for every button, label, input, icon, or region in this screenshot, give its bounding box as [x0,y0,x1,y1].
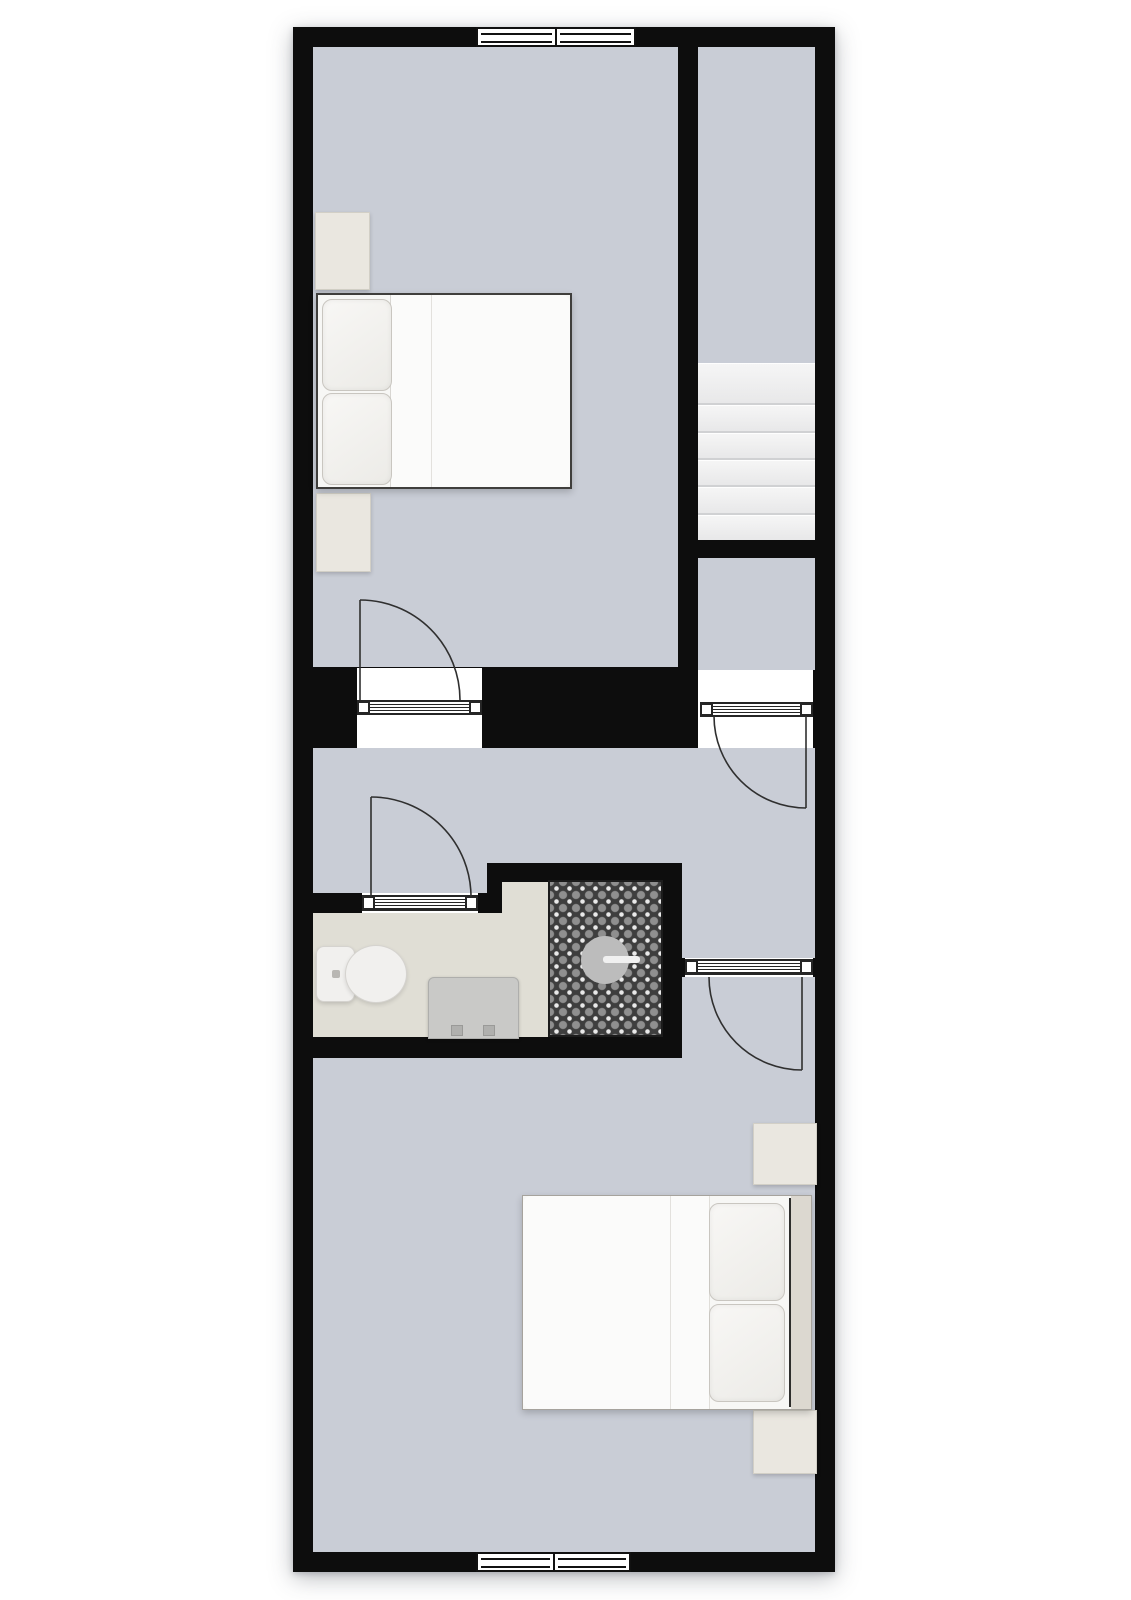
bathroom-floor-strip [502,882,548,913]
pillow [709,1304,785,1402]
door-panel-stair-landing [700,702,813,717]
headboard [791,1196,811,1409]
nightstand [753,1123,817,1185]
duvet [390,295,570,487]
stair-tread [698,405,815,432]
nightstand [753,1410,817,1474]
nightstand [316,493,371,572]
stairwell-upper-floor [698,47,815,363]
stair-tread [698,433,815,460]
duvet [523,1196,710,1409]
floor-plan [0,0,1131,1600]
pillow [322,393,392,485]
door-panel-bedroom-bottom [685,959,813,975]
toilet-bowl [345,945,407,1003]
bedroom-bottom-floor-right [682,977,815,1058]
stair-landing-floor [698,558,815,670]
hallway-floor [313,748,815,863]
hallway-floor-left [313,863,487,893]
faucet-icon [483,1025,495,1036]
faucet-icon [451,1025,463,1036]
washbasin-cabinet [428,977,519,1039]
stair-tread [698,515,815,540]
window-top [476,27,636,47]
stair-tread [698,460,815,487]
stair-tread [698,363,815,405]
window-bottom [476,1552,631,1572]
headboard-line [789,1198,791,1407]
window-pane [478,1554,555,1570]
staircase [698,363,815,540]
stair-tread [698,487,815,514]
hallway-floor-right [682,863,815,958]
window-pane [478,29,557,45]
pillow [709,1203,785,1301]
nightstand [315,212,370,290]
door-panel-bedroom-top [357,700,482,715]
window-pane [555,1554,630,1570]
double-bed-top [316,293,572,489]
pillow [322,299,392,391]
double-bed-bottom [522,1195,812,1410]
shower-drain-handle [603,956,640,963]
door-panel-bathroom [362,895,478,911]
window-pane [557,29,634,45]
